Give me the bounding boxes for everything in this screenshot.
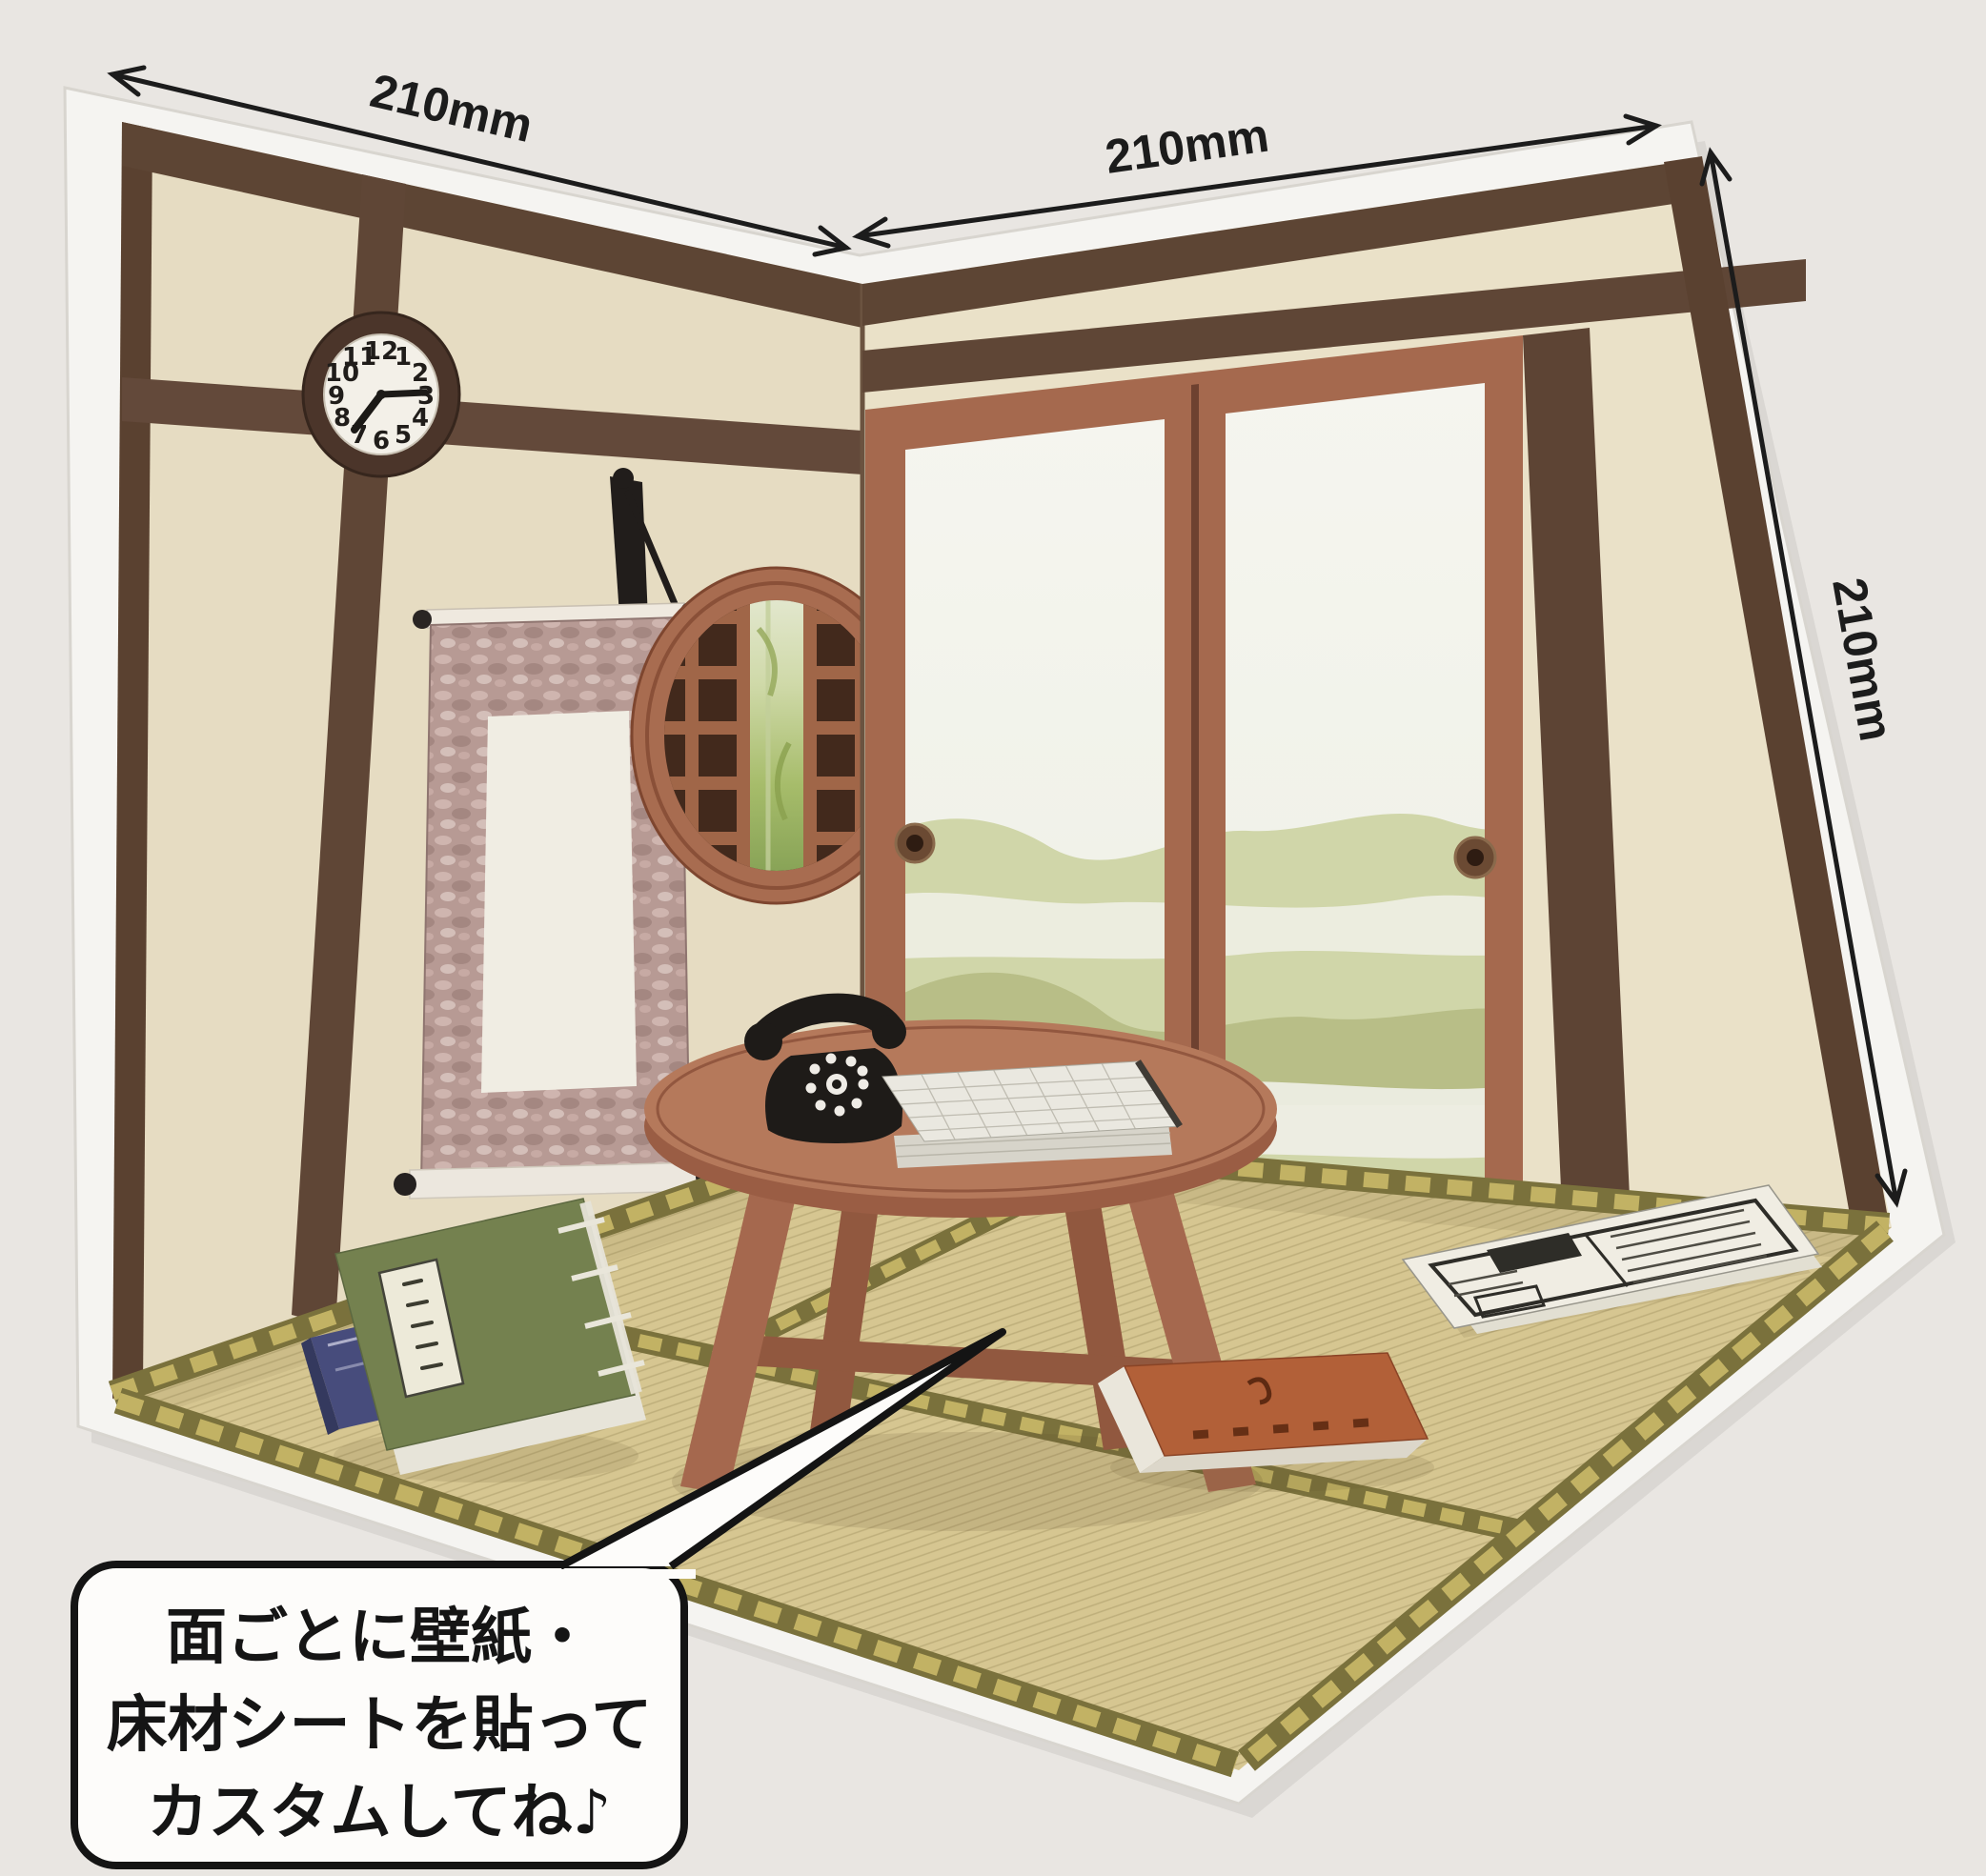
scroll-inner-panel (481, 711, 637, 1093)
window-bamboo-view (750, 568, 803, 903)
bubble-line-1: 面ごとに壁紙・ (166, 1603, 593, 1673)
clock-num-4: 4 (412, 404, 429, 433)
orange-book-cover (1125, 1353, 1428, 1456)
clock-num-5: 5 (395, 421, 412, 450)
orange-book (1098, 1353, 1434, 1492)
papercraft-room-photo: 12 1 2 3 4 5 6 7 8 9 10 11 (0, 0, 1986, 1876)
bubble-line-2: 床材シートを貼って (107, 1690, 653, 1761)
clock-minute-hand (381, 393, 425, 394)
clock-num-11: 11 (342, 343, 376, 372)
clock-num-1: 1 (395, 343, 412, 372)
wall-clock: 12 1 2 3 4 5 6 7 8 9 10 11 (303, 313, 459, 476)
clock-num-6: 6 (373, 427, 390, 455)
bubble-line-3: カスタムしてね♪ (148, 1778, 612, 1848)
